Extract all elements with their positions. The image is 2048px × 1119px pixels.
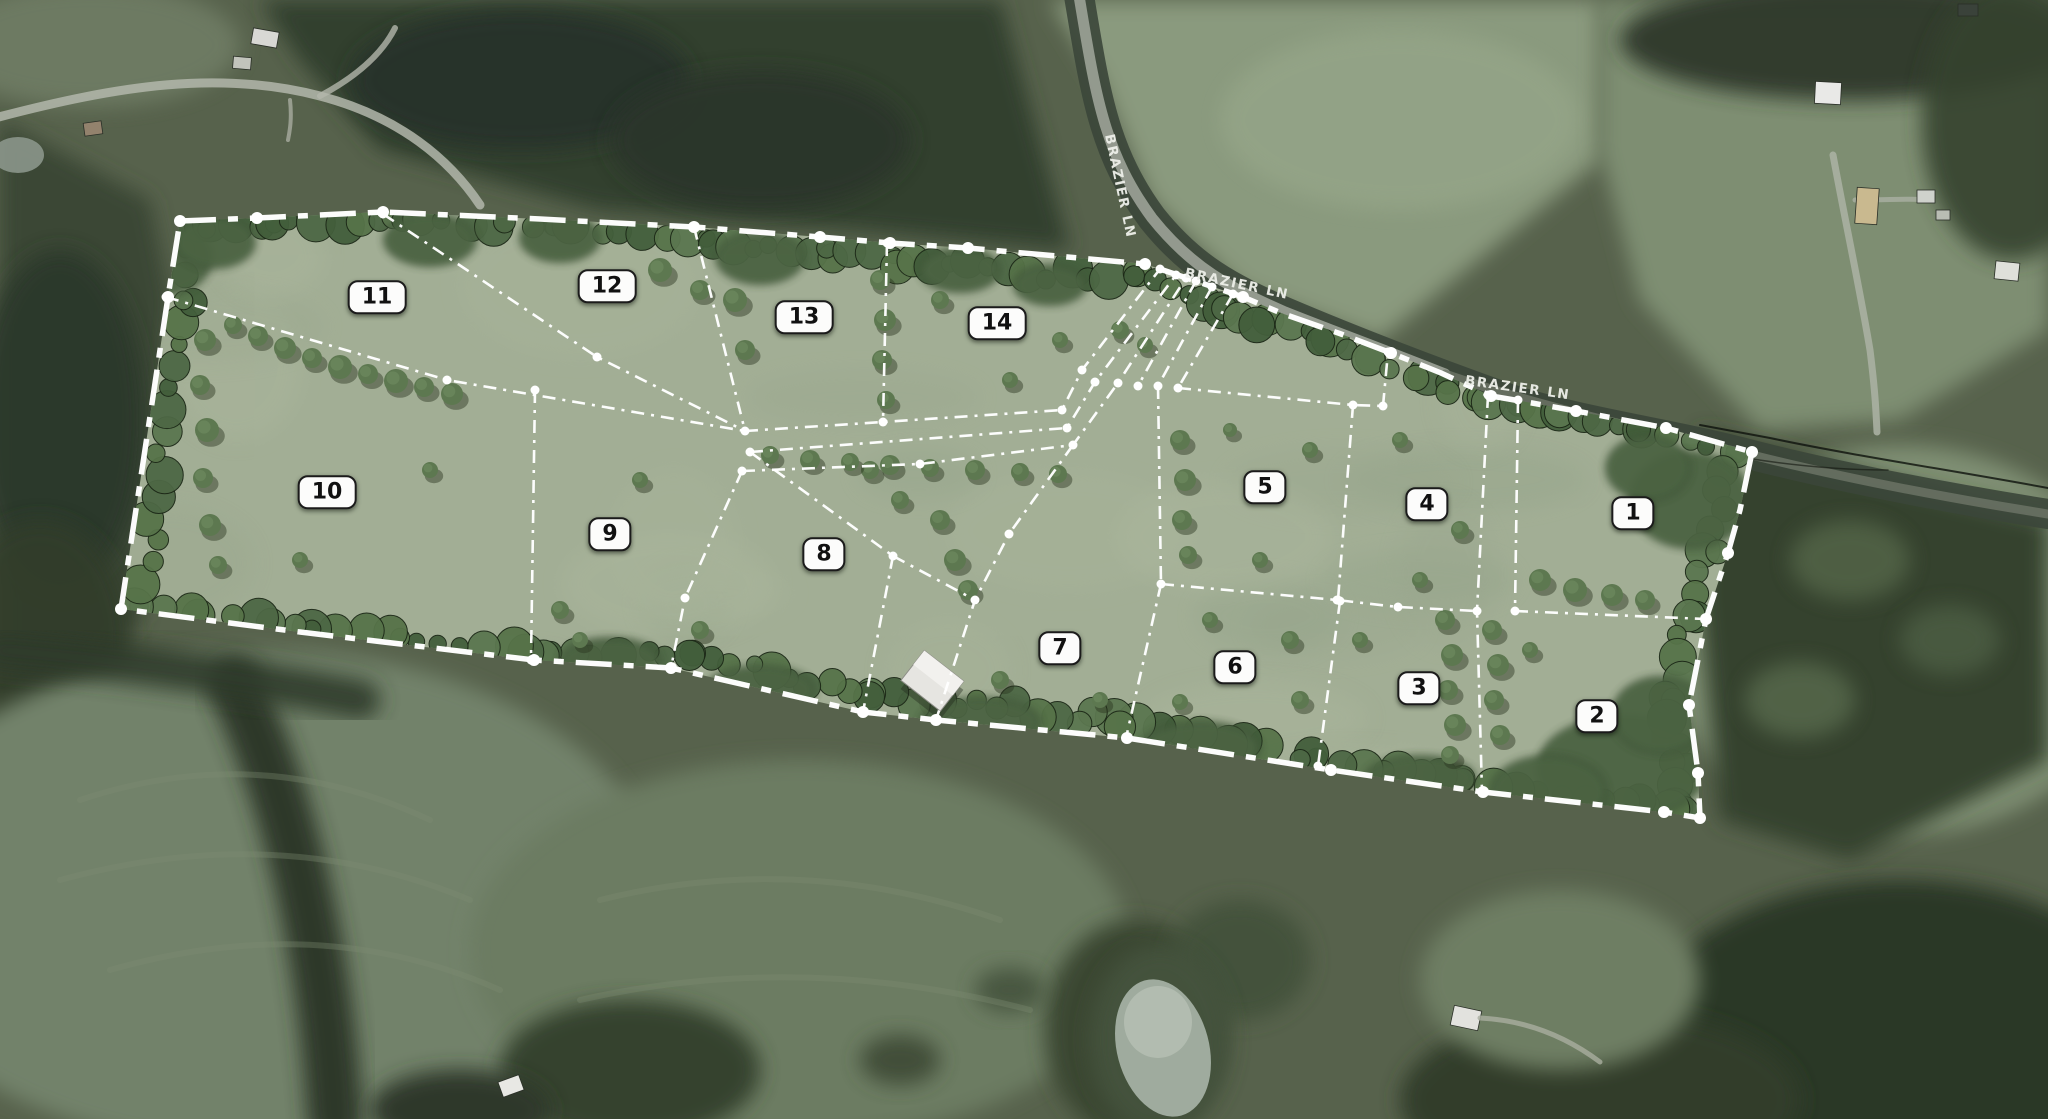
aerial-plat-map: BRAZIER LNBRAZIER LNBRAZIER LN 111213141… xyxy=(0,0,2048,1119)
map-canvas: BRAZIER LNBRAZIER LNBRAZIER LN xyxy=(0,0,2048,1119)
